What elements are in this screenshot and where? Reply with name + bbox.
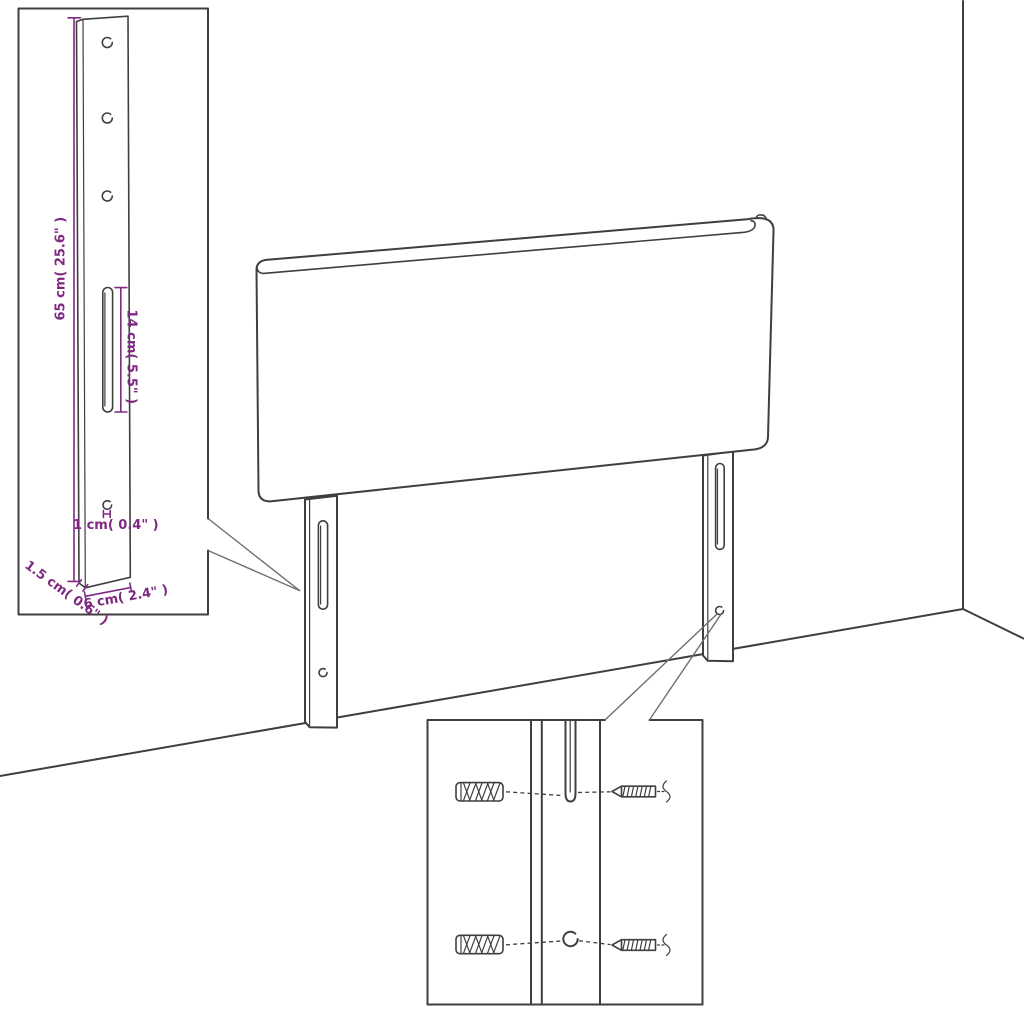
line-art [0, 0, 1024, 1024]
detail-strut-drawing [77, 16, 131, 588]
dimension-label-hole-diameter: 1 cm( 0.4" ) [73, 519, 153, 533]
detail-inset-leader-lines [208, 519, 300, 591]
hardware-inset-panel [428, 720, 703, 1005]
dimension-label-slot-length: 14 cm( 5.5" ) [124, 310, 138, 395]
dimension-label-strut-height: 65 cm( 25.6" ) [55, 226, 69, 321]
left-strut [305, 496, 337, 728]
right-strut [703, 451, 733, 661]
diagram-canvas: 65 cm( 25.6" ) 14 cm( 5.5" ) 1 cm( 0.4" … [0, 0, 1024, 1024]
headboard-panel [257, 215, 774, 502]
